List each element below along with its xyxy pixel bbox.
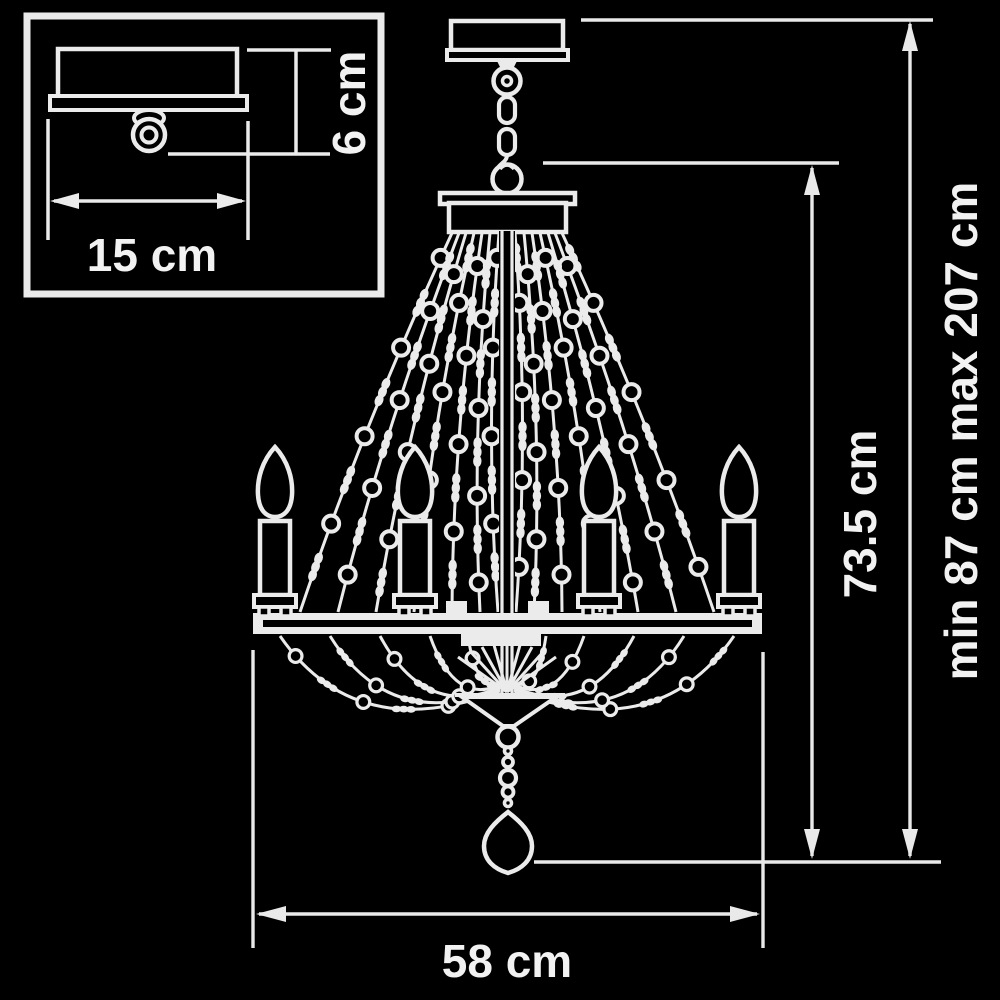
inset-width-label: 15 cm: [52, 232, 252, 278]
overall-height-dimension: [902, 21, 918, 859]
diameter-label: 58 cm: [407, 938, 607, 984]
chandelier-dimension-diagram: 15 cm 6 cm 73.5 cm min 87 cm max 207 cm …: [0, 0, 1000, 1000]
diameter-dimension: [256, 906, 760, 922]
body-height-label: 73.5 cm: [837, 430, 883, 599]
body-height-dimension: [804, 165, 820, 859]
candle-bulb: [722, 447, 756, 517]
overall-height-label: min 87 cm max 207 cm: [938, 182, 984, 681]
bottom-finial: [455, 695, 565, 873]
candle-bulb: [258, 447, 292, 517]
chandelier-hanger: [440, 21, 575, 232]
crystal-drop: [484, 812, 532, 873]
inset-height-label: 6 cm: [326, 51, 372, 156]
